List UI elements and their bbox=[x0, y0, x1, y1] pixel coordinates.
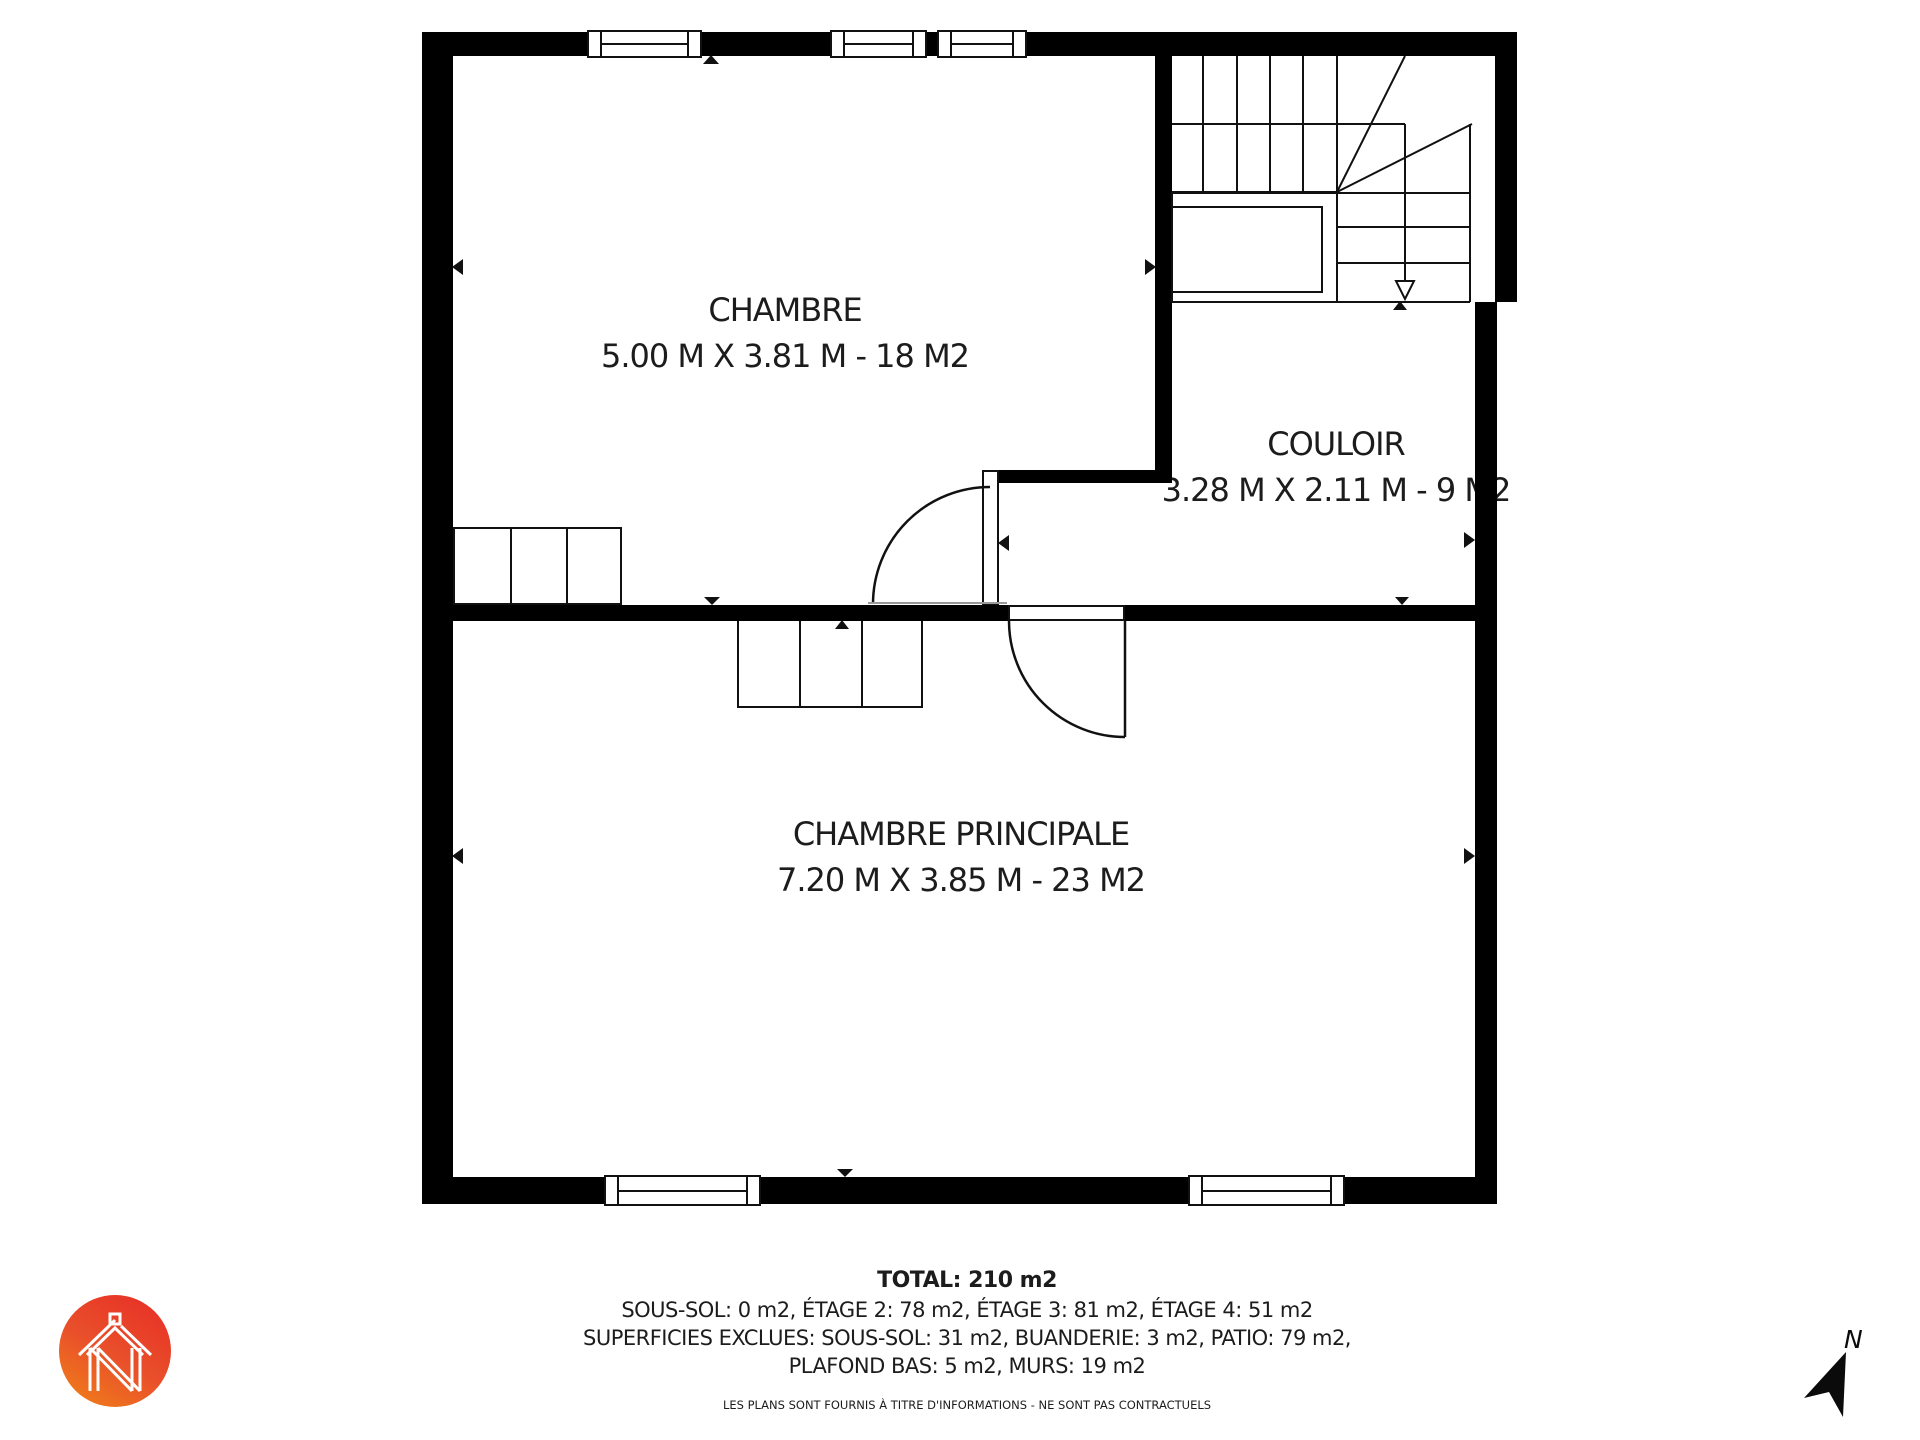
window-cap bbox=[937, 30, 952, 58]
window-cap bbox=[604, 1175, 619, 1206]
marker-right-icon bbox=[1464, 532, 1475, 548]
stair-landing-inner bbox=[1172, 207, 1322, 292]
marker-up-icon bbox=[703, 55, 719, 64]
window bbox=[604, 1175, 761, 1206]
marker-left-icon bbox=[998, 535, 1009, 551]
marker-left-icon bbox=[452, 259, 463, 275]
window bbox=[830, 30, 927, 58]
staircase bbox=[1172, 56, 1472, 302]
window-cap bbox=[1012, 30, 1027, 58]
plan-lines bbox=[0, 0, 1920, 1440]
window-cap bbox=[830, 30, 845, 58]
window bbox=[1188, 1175, 1345, 1206]
window-cap bbox=[687, 30, 702, 58]
marker-down-icon bbox=[704, 597, 720, 605]
door-swing-principale bbox=[1009, 621, 1125, 737]
window-cap bbox=[1188, 1175, 1203, 1206]
marker-down-icon bbox=[837, 1169, 853, 1177]
window-cap bbox=[587, 30, 602, 58]
window-cap bbox=[746, 1175, 761, 1206]
window bbox=[937, 30, 1027, 58]
floor-plan: CHAMBRE 5.00 M X 3.81 M - 18 M2 COULOIR … bbox=[0, 0, 1920, 1440]
marker-up-icon bbox=[835, 620, 849, 629]
door-swing-chambre bbox=[873, 487, 990, 604]
marker-left-icon bbox=[452, 848, 463, 864]
marker-down-icon bbox=[1395, 597, 1409, 605]
window-cap bbox=[912, 30, 927, 58]
stairs-down-arrow-icon bbox=[1396, 281, 1414, 299]
marker-right-icon bbox=[1145, 259, 1156, 275]
marker-right-icon bbox=[1464, 848, 1475, 864]
door-arcs bbox=[868, 487, 1125, 737]
stair-landing bbox=[1172, 193, 1337, 302]
window bbox=[587, 30, 702, 58]
window-cap bbox=[1330, 1175, 1345, 1206]
